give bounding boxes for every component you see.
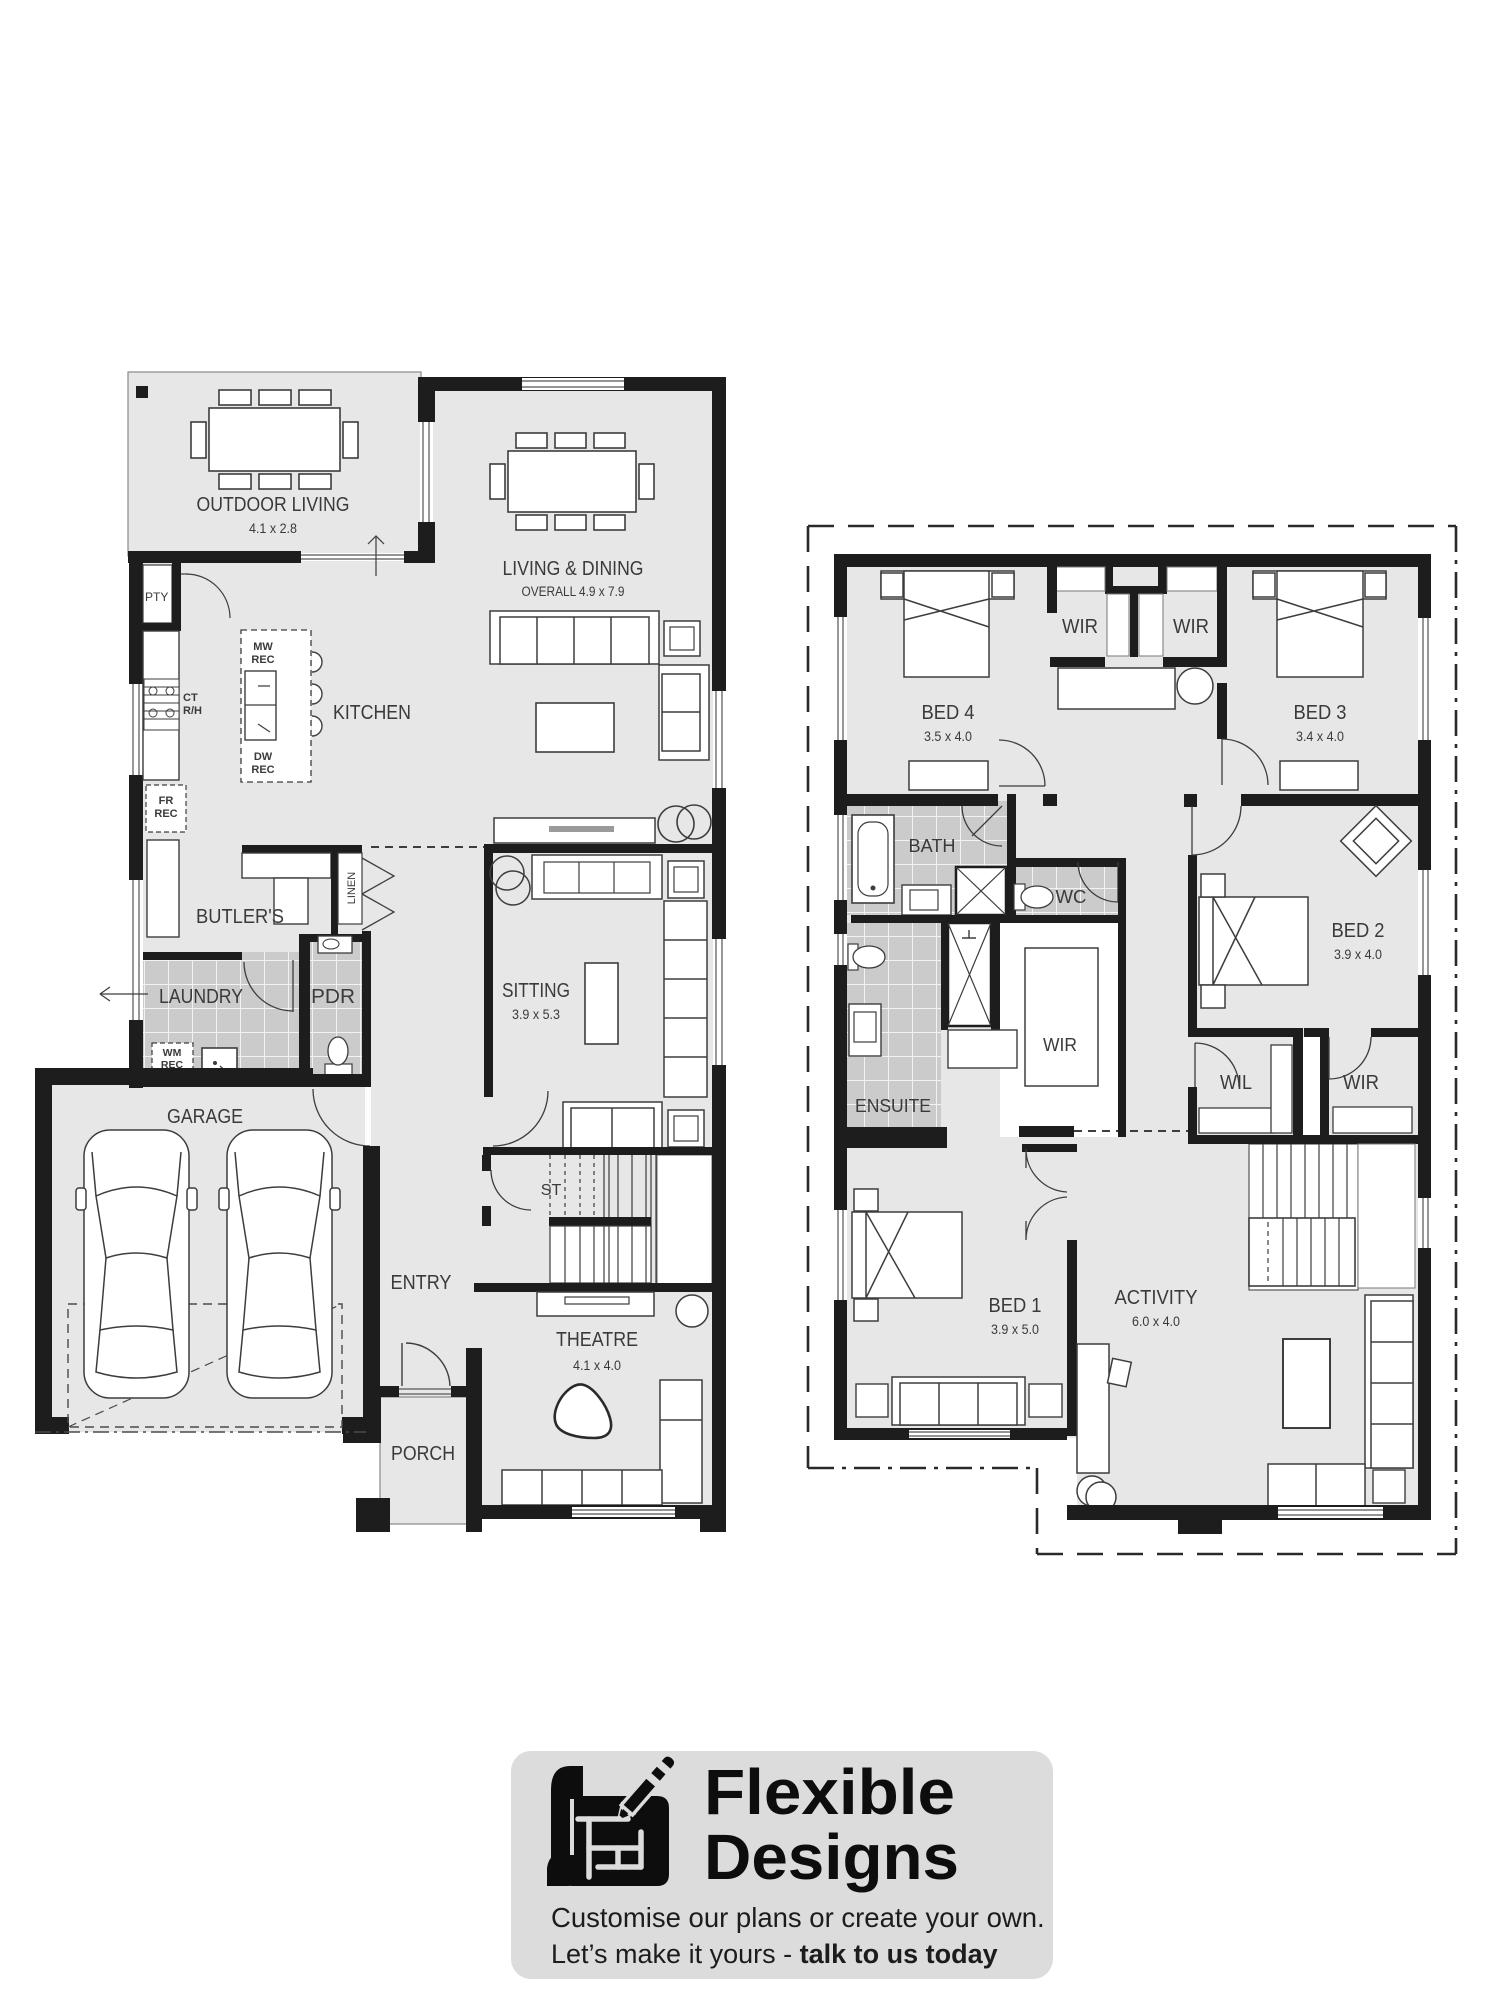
- svg-text:WIR: WIR: [1062, 616, 1098, 638]
- svg-text:Designs: Designs: [704, 1821, 959, 1893]
- svg-text:CT: CT: [183, 692, 198, 704]
- svg-text:WIR: WIR: [1173, 616, 1209, 638]
- svg-text:OUTDOOR LIVING: OUTDOOR LIVING: [197, 494, 350, 516]
- svg-text:REC: REC: [251, 654, 274, 666]
- svg-text:WIR: WIR: [1343, 1072, 1379, 1094]
- svg-text:ST: ST: [541, 1182, 562, 1199]
- svg-text:LINEN: LINEN: [346, 872, 358, 904]
- svg-text:WIL: WIL: [1220, 1072, 1252, 1094]
- svg-text:KITCHEN: KITCHEN: [333, 702, 411, 724]
- svg-text:PTY: PTY: [145, 590, 168, 604]
- svg-text:4.1 x 2.8: 4.1 x 2.8: [249, 521, 297, 536]
- svg-text:ENSUITE: ENSUITE: [855, 1096, 931, 1116]
- svg-text:BED 2: BED 2: [1332, 920, 1385, 942]
- svg-text:Customise our plans or create: Customise our plans or create your own.: [551, 1902, 1045, 1933]
- svg-text:OVERALL 4.9 x 7.9: OVERALL 4.9 x 7.9: [522, 584, 625, 599]
- svg-text:3.9 x 5.3: 3.9 x 5.3: [512, 1007, 560, 1022]
- svg-text:DW: DW: [254, 751, 273, 763]
- svg-text:SITTING: SITTING: [502, 980, 570, 1002]
- svg-text:R/H: R/H: [183, 705, 202, 717]
- svg-text:PDR: PDR: [311, 986, 355, 1008]
- svg-text:REC: REC: [251, 764, 274, 776]
- svg-text:6.0 x 4.0: 6.0 x 4.0: [1132, 1314, 1180, 1329]
- svg-text:GARAGE: GARAGE: [167, 1106, 243, 1128]
- svg-text:3.9 x 4.0: 3.9 x 4.0: [1334, 947, 1382, 962]
- svg-text:WC: WC: [1056, 887, 1087, 907]
- svg-text:3.9 x 5.0: 3.9 x 5.0: [991, 1322, 1039, 1337]
- svg-text:WIR: WIR: [1043, 1035, 1077, 1055]
- svg-text:FR: FR: [159, 795, 174, 807]
- svg-text:MW: MW: [253, 641, 273, 653]
- svg-text:BED 3: BED 3: [1294, 702, 1347, 724]
- svg-text:THEATRE: THEATRE: [556, 1329, 638, 1351]
- svg-text:Let’s make it yours - talk to: Let’s make it yours - talk to us today: [551, 1939, 998, 1969]
- svg-text:BED 4: BED 4: [922, 702, 975, 724]
- svg-text:3.4 x 4.0: 3.4 x 4.0: [1296, 729, 1344, 744]
- svg-text:Flexible: Flexible: [704, 1756, 955, 1828]
- svg-text:ACTIVITY: ACTIVITY: [1115, 1287, 1198, 1309]
- svg-text:PORCH: PORCH: [391, 1443, 455, 1465]
- svg-text:BUTLER'S: BUTLER'S: [196, 906, 284, 928]
- svg-text:LAUNDRY: LAUNDRY: [159, 986, 243, 1008]
- svg-text:3.5 x 4.0: 3.5 x 4.0: [924, 729, 972, 744]
- svg-text:REC: REC: [154, 808, 177, 820]
- svg-text:WM: WM: [163, 1047, 182, 1059]
- svg-text:BATH: BATH: [909, 836, 956, 856]
- svg-text:ENTRY: ENTRY: [391, 1272, 452, 1294]
- svg-text:4.1 x 4.0: 4.1 x 4.0: [573, 1358, 621, 1373]
- svg-text:LIVING & DINING: LIVING & DINING: [503, 558, 644, 580]
- svg-text:BED 1: BED 1: [989, 1295, 1042, 1317]
